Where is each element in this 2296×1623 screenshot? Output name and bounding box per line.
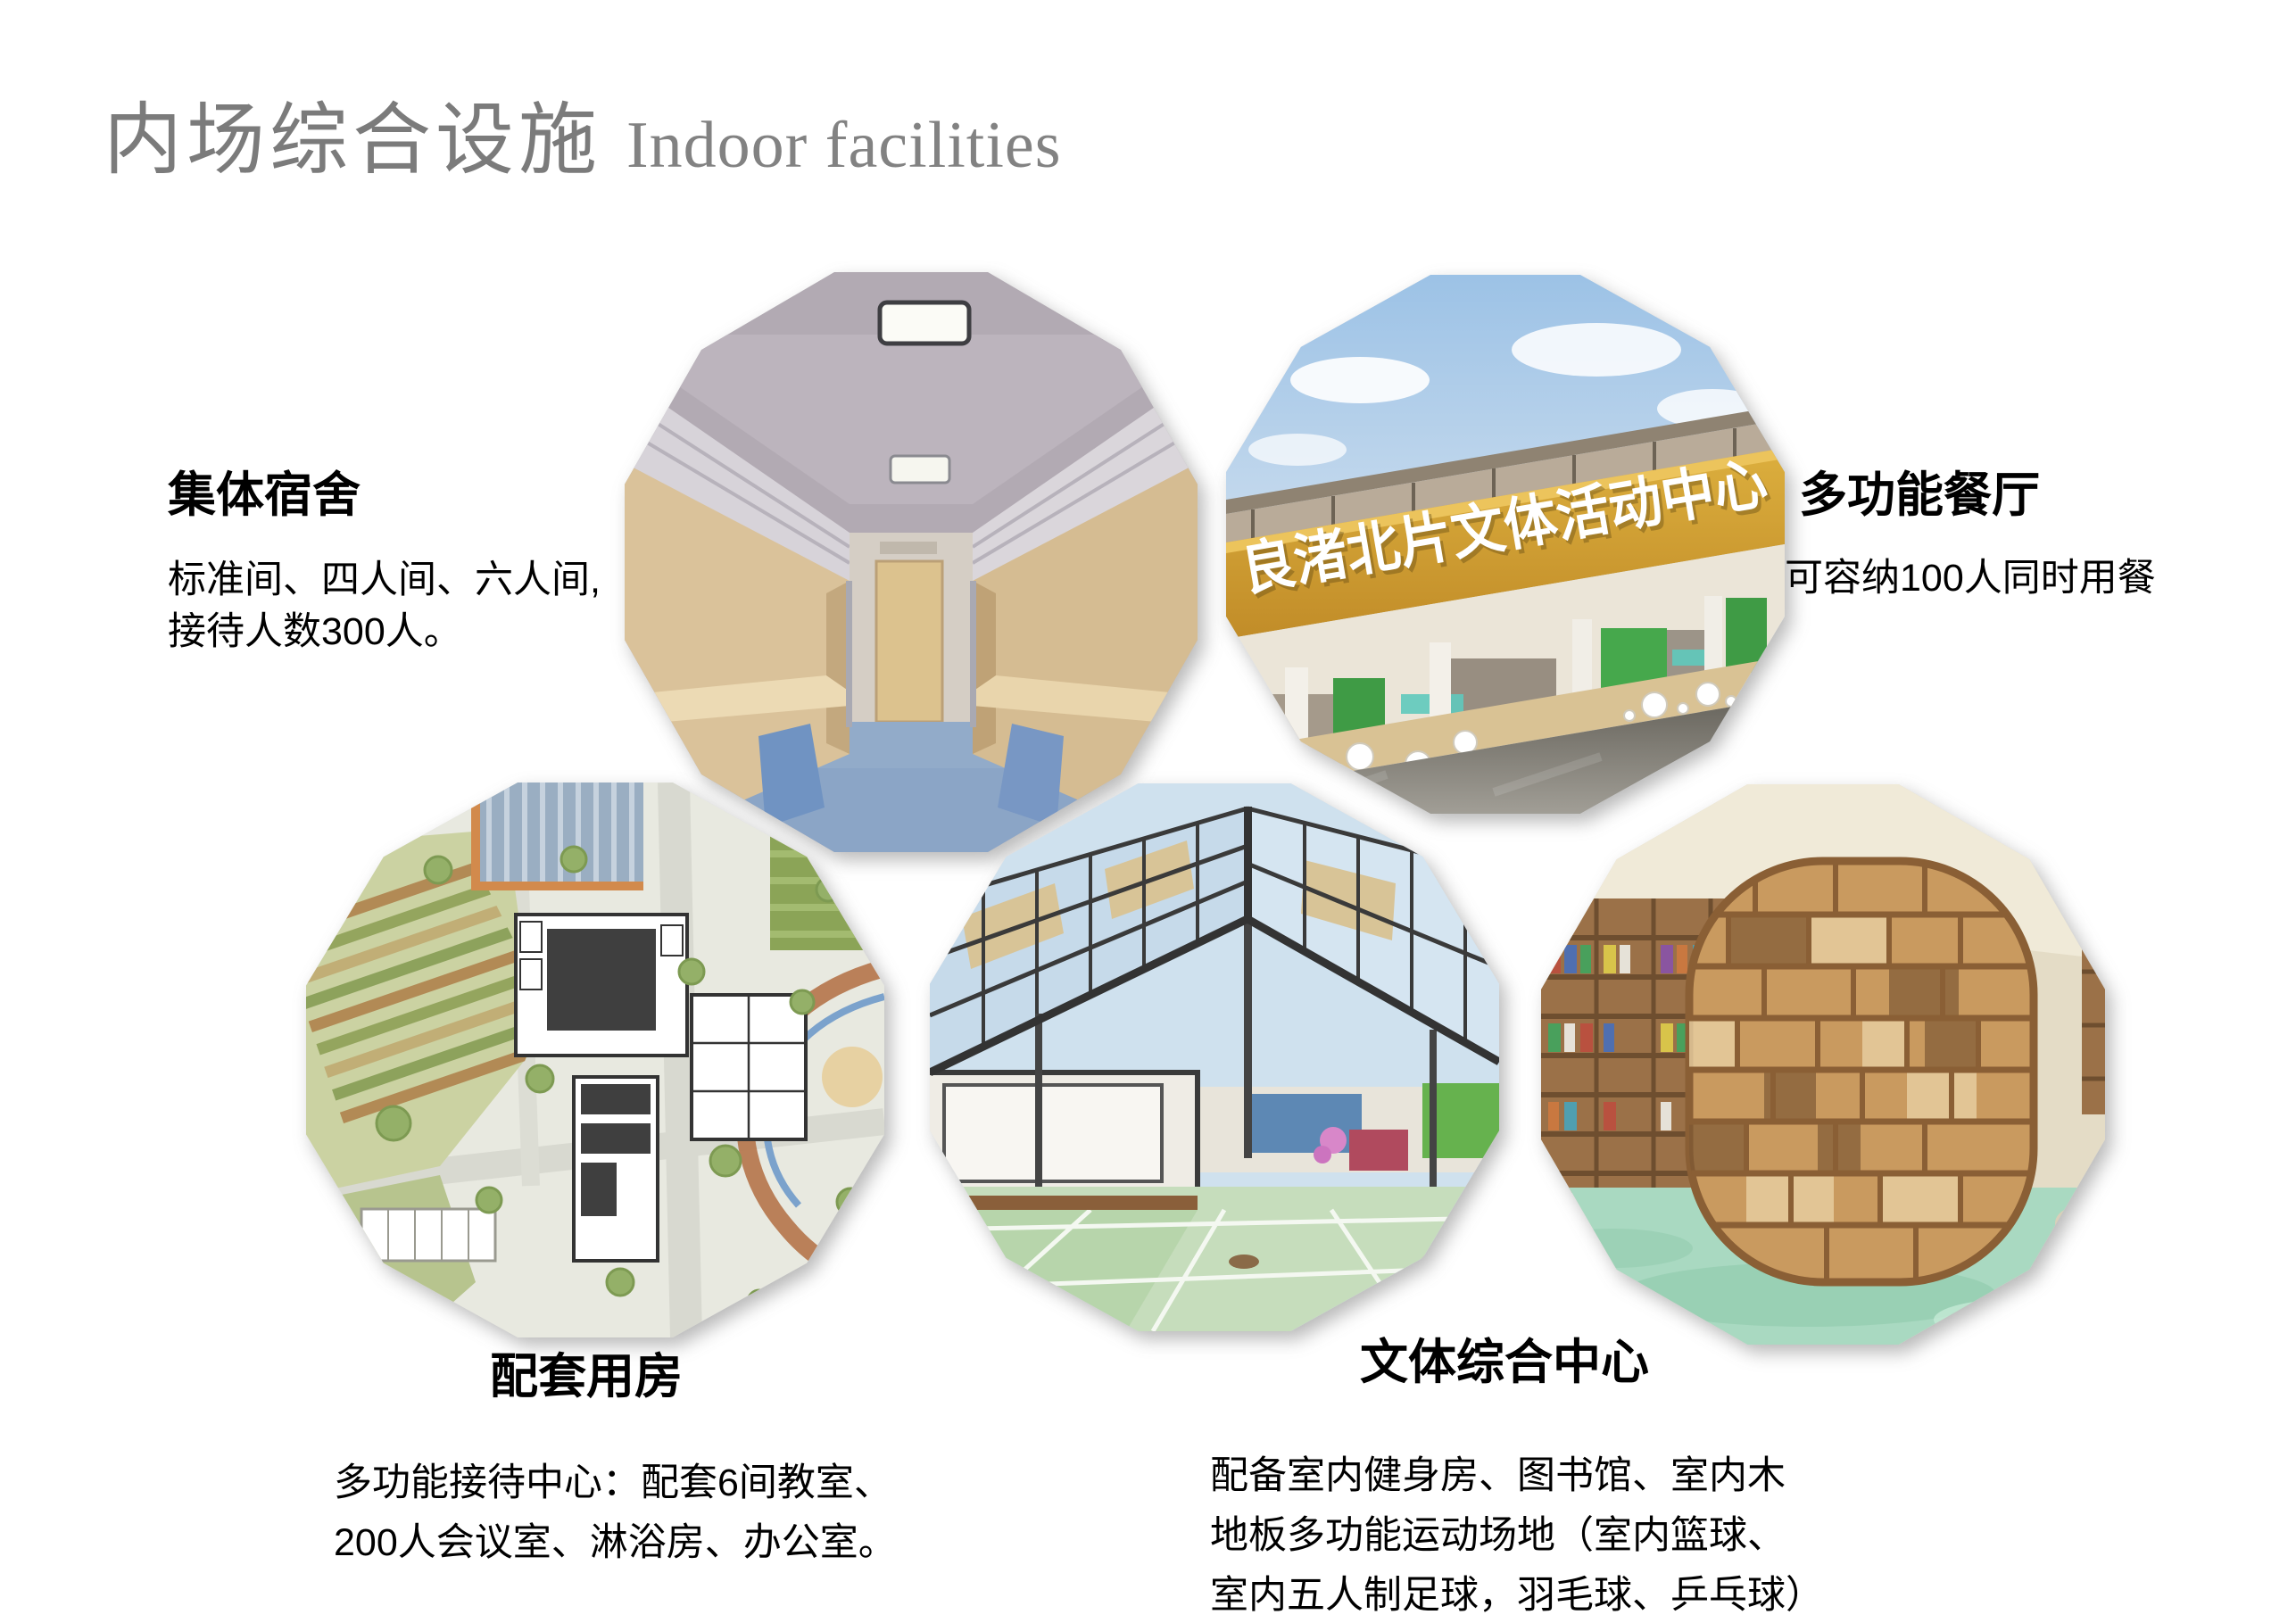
caption-restaurant: 多功能餐厅 可容纳100人同时用餐: [1785, 464, 2293, 604]
sports-hall-photo: [930, 783, 1499, 1331]
facility-heading-culture-sports-center: 文体综合中心: [1210, 1331, 1799, 1395]
site-plan-photo-scene: [306, 783, 884, 1337]
facility-desc-line: 标准间、四人间、六人间,: [168, 554, 650, 606]
facility-desc-restaurant: 可容纳100人同时用餐: [1785, 552, 2293, 604]
caption-dormitory: 集体宿舍 标准间、四人间、六人间, 接待人数300人。: [168, 464, 650, 658]
facility-desc-support-rooms: 多功能接待中心：配套6间教室、 200人会议室、淋浴房、办公室。: [334, 1453, 839, 1573]
library-photo: [1541, 784, 2105, 1345]
library-photo-scene: [1541, 784, 2105, 1345]
facility-desc-line: 可容纳100人同时用餐: [1785, 552, 2293, 604]
dormitory-photo: [625, 272, 1198, 852]
page-title-en: Indoor facilities: [626, 108, 1062, 184]
facility-desc-culture-sports-center: 配备室内健身房、图书馆、室内木 地板多功能运动场地（室内篮球、 室内五人制足球，…: [1210, 1446, 1799, 1623]
dormitory-photo-scene: [625, 272, 1198, 852]
facility-desc-line: 接待人数300人。: [168, 606, 650, 658]
activity-center-photo-scene: 良渚北片文体活动中心 良渚北片文体活动中心: [1226, 275, 1785, 814]
sports-hall-photo-scene: [930, 783, 1499, 1331]
slide: 内场综合设施 Indoor facilities: [0, 0, 2296, 1623]
facility-heading-restaurant: 多功能餐厅: [1785, 464, 2293, 527]
facility-heading-support-rooms: 配套用房: [334, 1346, 839, 1409]
caption-support-rooms: 配套用房 多功能接待中心：配套6间教室、 200人会议室、淋浴房、办公室。: [334, 1346, 839, 1573]
facility-desc-line: 200人会议室、淋浴房、办公室。: [334, 1513, 839, 1573]
page-title: 内场综合设施 Indoor facilities: [104, 96, 1062, 186]
facility-desc-line: 多功能接待中心：配套6间教室、: [334, 1453, 839, 1513]
facility-heading-dormitory: 集体宿舍: [168, 464, 650, 527]
facility-desc-dormitory: 标准间、四人间、六人间, 接待人数300人。: [168, 554, 650, 658]
facility-desc-line: 室内五人制足球，羽毛球、乒乓球）: [1210, 1566, 1799, 1623]
caption-culture-sports-center: 文体综合中心 配备室内健身房、图书馆、室内木 地板多功能运动场地（室内篮球、 室…: [1210, 1331, 1799, 1623]
facility-desc-line: 地板多功能运动场地（室内篮球、: [1210, 1506, 1799, 1566]
page-title-zh: 内场综合设施: [104, 96, 601, 186]
site-plan-photo: [306, 783, 884, 1337]
facility-desc-line: 配备室内健身房、图书馆、室内木: [1210, 1446, 1799, 1506]
activity-center-photo: 良渚北片文体活动中心 良渚北片文体活动中心: [1226, 275, 1785, 814]
